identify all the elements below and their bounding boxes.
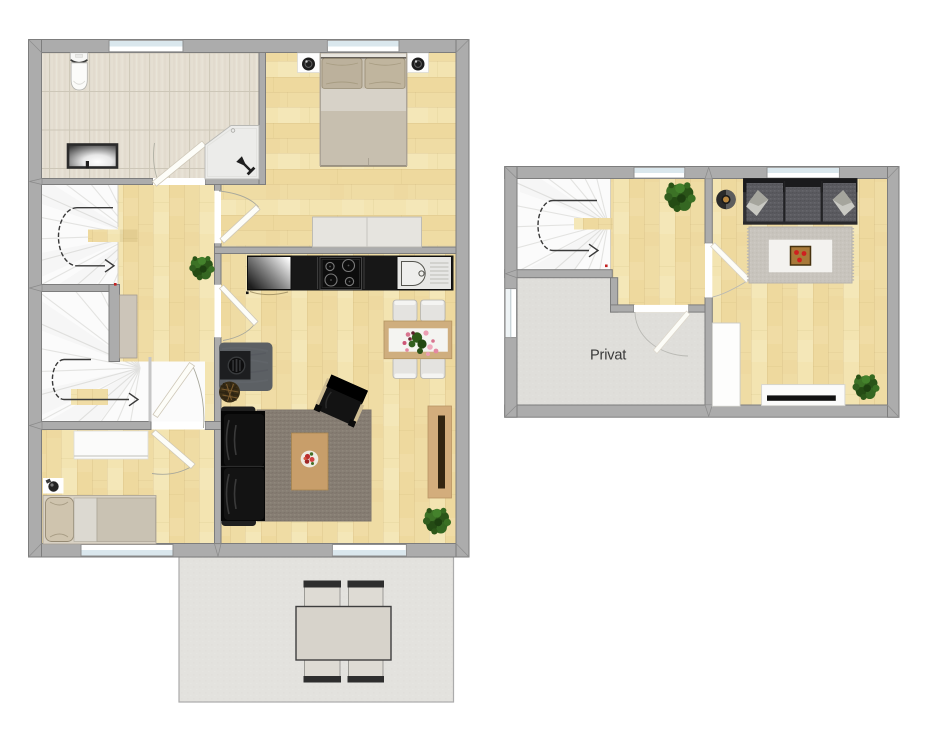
svg-text:Privat: Privat (590, 348, 626, 364)
